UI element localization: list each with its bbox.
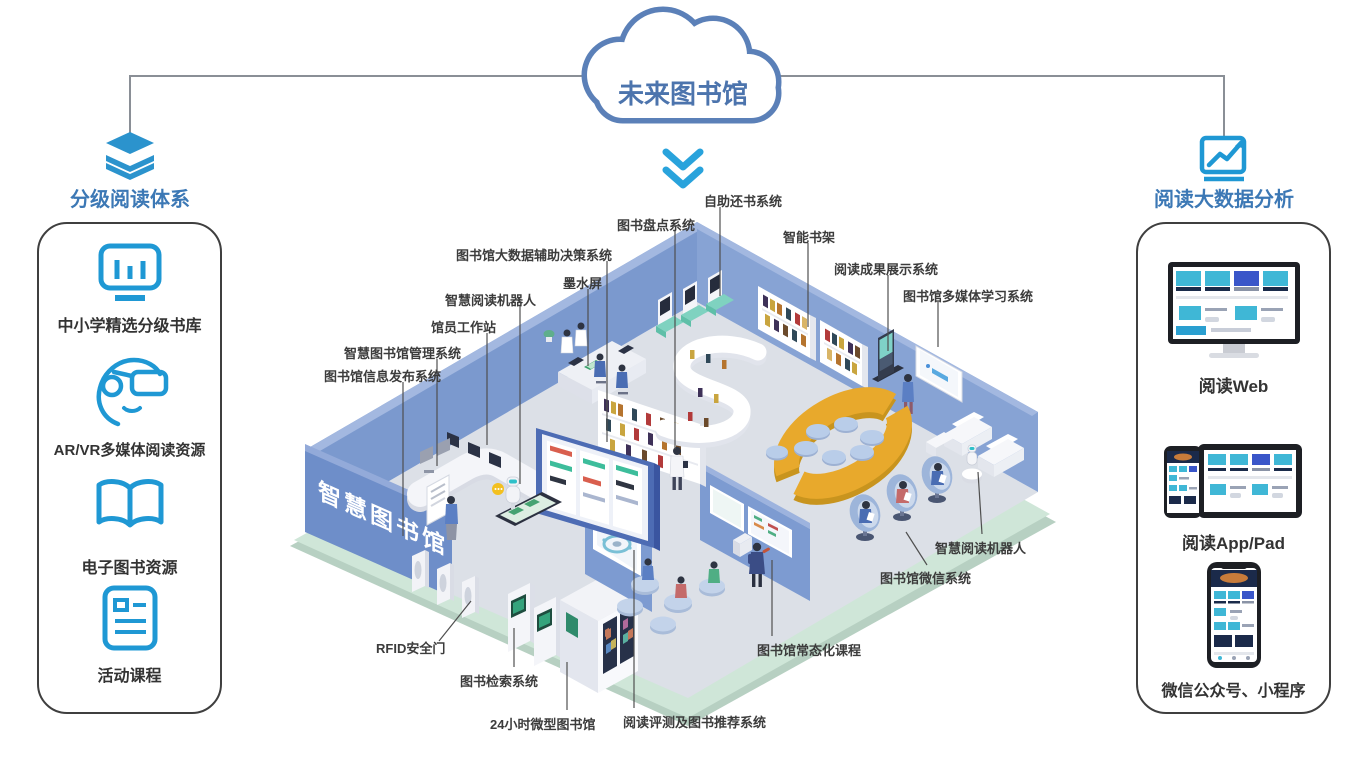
callout-rfid-gate: RFID安全门 bbox=[376, 638, 445, 657]
future-library-cloud: 未来图书馆 bbox=[0, 0, 1353, 220]
callout-reading-robot: 智慧阅读机器人 bbox=[445, 290, 536, 309]
callout-wechat-system: 图书馆微信系统 bbox=[880, 568, 971, 587]
infographic-canvas: 智慧图书馆 bbox=[0, 0, 1353, 765]
callout-regular-course: 图书馆常态化课程 bbox=[757, 640, 861, 659]
callout-eink-screen: 墨水屏 bbox=[563, 273, 602, 292]
callout-self-return: 自助还书系统 bbox=[704, 191, 782, 210]
double-chevron-down-icon bbox=[666, 152, 700, 185]
callout-achievement: 阅读成果展示系统 bbox=[834, 259, 938, 278]
callout-smart-shelf: 智能书架 bbox=[783, 227, 835, 246]
callout-reading-assess: 阅读评测及图书推荐系统 bbox=[623, 712, 766, 731]
callout-bigdata-decision: 图书馆大数据辅助决策系统 bbox=[456, 245, 612, 264]
callout-management-system: 智慧图书馆管理系统 bbox=[344, 343, 461, 362]
callout-librarian-station: 馆员工作站 bbox=[431, 317, 496, 336]
cloud-title: 未来图书馆 bbox=[618, 79, 748, 109]
callout-book-search: 图书检索系统 bbox=[460, 671, 538, 690]
callout-reading-robot-2: 智慧阅读机器人 bbox=[935, 538, 1026, 557]
callout-multimedia: 图书馆多媒体学习系统 bbox=[903, 286, 1033, 305]
callout-inventory: 图书盘点系统 bbox=[617, 215, 695, 234]
callout-info-publishing: 图书馆信息发布系统 bbox=[324, 366, 441, 385]
sofa-robot bbox=[967, 445, 977, 465]
callout-micro-library: 24小时微型图书馆 bbox=[490, 714, 595, 733]
